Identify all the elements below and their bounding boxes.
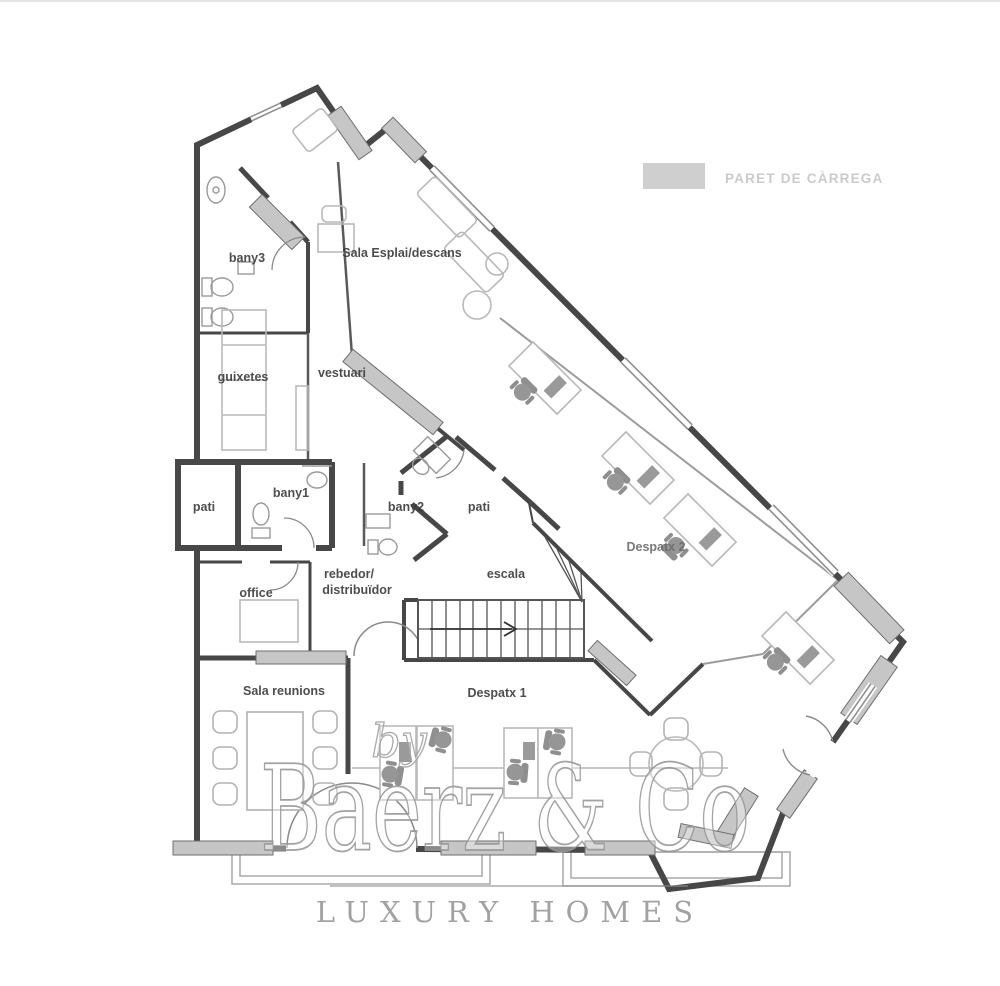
- office-desk: [240, 600, 298, 642]
- top-border-line: [0, 0, 1000, 2]
- stairs: [418, 537, 584, 658]
- round-table: [463, 291, 491, 319]
- room-label-bany2: bany2: [388, 500, 424, 514]
- sink-icon: [207, 177, 225, 203]
- room-label-sala-esplai: Sala Esplai/descans: [342, 246, 462, 260]
- legend-swatch: [643, 163, 705, 189]
- room-label-pati-left: pati: [193, 500, 215, 514]
- sink-icon: [302, 466, 332, 488]
- toilet-icon: [252, 503, 270, 538]
- watermark-tagline: LUXURY HOMES: [316, 895, 704, 929]
- room-label-bany3: bany3: [229, 251, 265, 265]
- floor-plan-page: bany3 Sala Esplai/descans guixetes vestu…: [0, 0, 1000, 986]
- floor-plan-drawing: bany3 Sala Esplai/descans guixetes vestu…: [0, 0, 1000, 986]
- sofa: [443, 231, 505, 294]
- watermark: by Baerz & Co LUXURY HOMES: [260, 714, 750, 929]
- room-label-despatx2: Despatx 2: [626, 540, 685, 554]
- bench: [296, 386, 308, 450]
- toilet-icon: [202, 278, 233, 296]
- stool: [486, 253, 508, 275]
- room-label-office: office: [239, 586, 272, 600]
- room-label-bany1: bany1: [273, 486, 309, 500]
- legend-label: PARET DE CÀRREGA: [725, 171, 883, 186]
- toilet-icon: [368, 539, 397, 555]
- room-label-sala-reunions: Sala reunions: [243, 684, 325, 698]
- sink-icon: [366, 514, 390, 528]
- inner-walls: [178, 162, 838, 774]
- room-label-rebedor-line2: distribuïdor: [322, 583, 392, 597]
- room-label-pati-center: pati: [468, 500, 490, 514]
- room-label-guixetes: guixetes: [218, 370, 269, 384]
- legend: PARET DE CÀRREGA: [643, 163, 883, 189]
- room-label-rebedor-line1: rebedor/: [324, 567, 375, 581]
- room-label-despatx1: Despatx 1: [467, 686, 526, 700]
- room-label-escala: escala: [487, 567, 526, 581]
- watermark-brand: Baerz & Co: [260, 740, 750, 878]
- room-label-vestuari: vestuari: [318, 366, 366, 380]
